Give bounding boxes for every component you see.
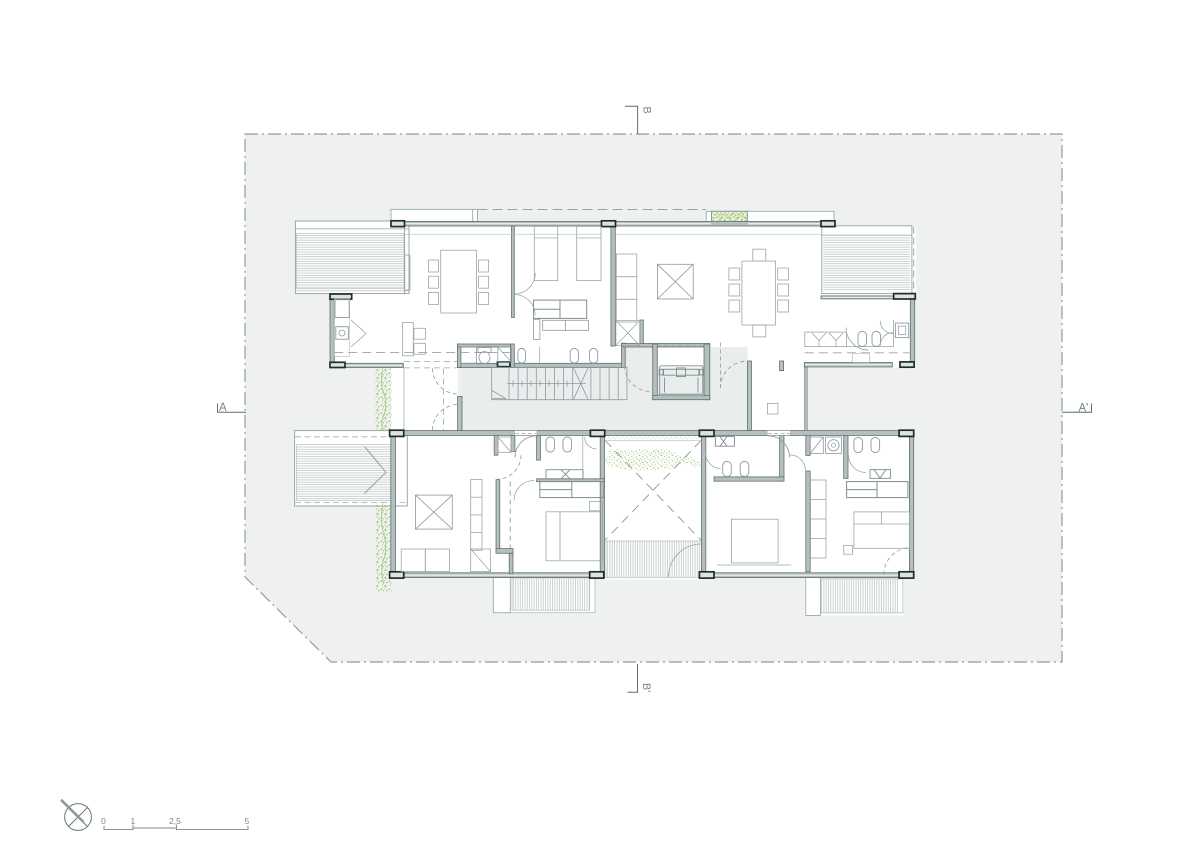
svg-text:5: 5 xyxy=(245,816,250,826)
svg-text:1: 1 xyxy=(131,816,136,826)
svg-text:B: B xyxy=(641,107,653,114)
svg-text:0: 0 xyxy=(101,816,106,826)
svg-text:B': B' xyxy=(640,683,652,692)
svg-text:A': A' xyxy=(1079,403,1089,415)
svg-text:2,5: 2,5 xyxy=(169,816,181,826)
svg-text:A: A xyxy=(219,402,227,414)
